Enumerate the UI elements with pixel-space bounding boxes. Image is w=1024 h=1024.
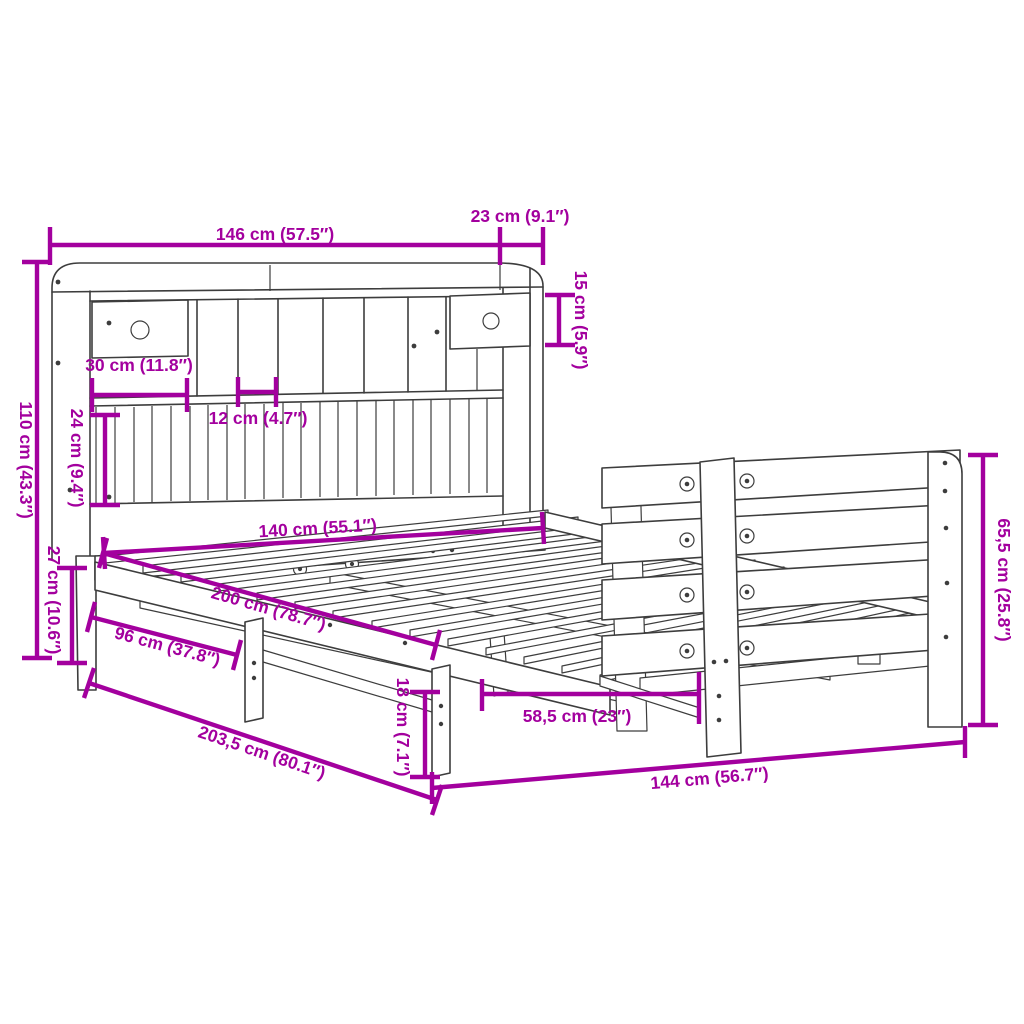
dim-label-lower-shelf-height: 24 cm (9.4″): [67, 409, 87, 508]
dim-label-footboard-height: 65,5 cm (25.8″): [994, 518, 1014, 641]
dim-label-under-clearance: 18 cm (7.1″): [393, 678, 413, 777]
dim-label-top-shelf-height: 15 cm (5.9″): [571, 271, 591, 370]
dim-label-leg-spacing: 58,5 cm (23″): [523, 706, 632, 726]
dim-label-drawer-width: 30 cm (11.8″): [85, 355, 193, 375]
dim-footboard-width: 144 cm (56.7″): [432, 726, 965, 804]
dim-width-total: 146 cm (57.5″) 23 cm (9.1″): [50, 206, 569, 265]
footboard-near-leg: [700, 458, 741, 757]
dimension-diagram: 146 cm (57.5″) 23 cm (9.1″) 15 cm (5.9″)…: [0, 0, 1024, 1024]
footboard-right-post: [928, 452, 962, 727]
dim-label-side-rail-length: 96 cm (37.8″): [113, 622, 223, 669]
dim-label-total-length: 203,5 cm (80.1″): [196, 722, 328, 783]
dim-label-frame-height: 27 cm (10.6″): [44, 546, 64, 655]
headboard-drawer-right: [450, 293, 530, 349]
dim-top-shelf-height: 15 cm (5.9″): [545, 271, 591, 370]
dim-label-cubby-width: 12 cm (4.7″): [209, 408, 308, 428]
bed-diagram-canvas: 146 cm (57.5″) 23 cm (9.1″) 15 cm (5.9″)…: [0, 0, 1024, 1024]
dim-label-top-depth: 23 cm (9.1″): [471, 206, 570, 226]
dim-footboard-height: 65,5 cm (25.8″): [968, 455, 1014, 725]
headboard-drawer-left: [92, 300, 188, 358]
dim-label-headboard-height: 110 cm (43.3″): [16, 401, 36, 518]
dim-label-width-total: 146 cm (57.5″): [216, 224, 334, 244]
